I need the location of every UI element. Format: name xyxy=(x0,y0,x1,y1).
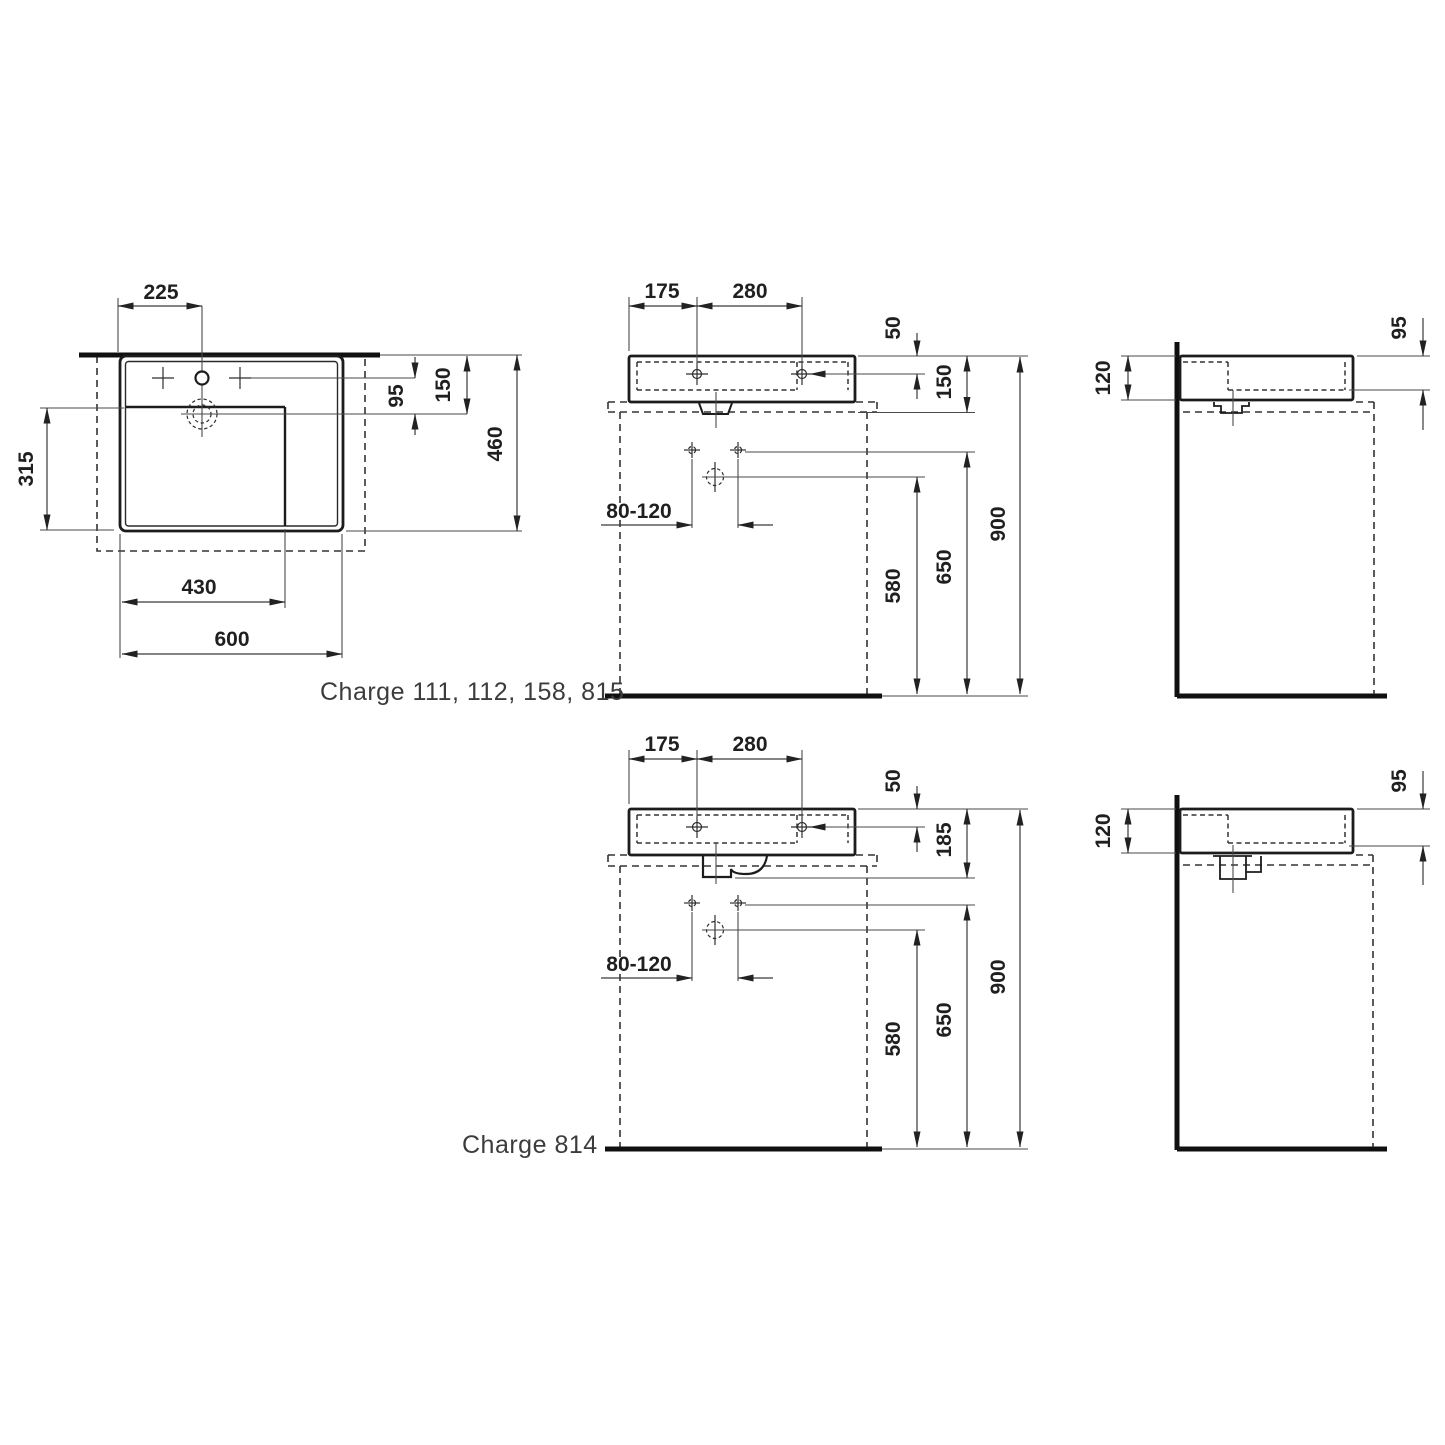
side-bot-dim-120: 120 xyxy=(1092,813,1115,848)
front-top-dim-580: 580 xyxy=(882,568,905,603)
plan-dim-315: 315 xyxy=(15,451,38,486)
front-bot-dim-50: 50 xyxy=(882,769,905,792)
front-bot-dim-175: 175 xyxy=(644,733,679,756)
front-bot-dim-185: 185 xyxy=(933,822,956,857)
side-top-dim-95: 95 xyxy=(1388,316,1411,340)
front-bot-dim-80-120: 80-120 xyxy=(606,953,671,976)
front-bot-dim-280: 280 xyxy=(732,733,767,756)
plan-dim-430: 430 xyxy=(181,576,216,599)
technical-drawing-sheet: 225 95 150 460 315 430 600 xyxy=(0,0,1445,1445)
front-bot-dim-650: 650 xyxy=(933,1002,956,1037)
side-top-dim-120: 120 xyxy=(1092,360,1115,395)
series-label-bottom: Charge 814 xyxy=(462,1131,598,1159)
washbasin-dimension-drawing: 225 95 150 460 315 430 600 xyxy=(0,0,1445,1445)
front-bot-dim-580: 580 xyxy=(882,1021,905,1056)
front-top-dim-150: 150 xyxy=(933,364,956,399)
side-basin-outline-b xyxy=(1180,809,1353,853)
plan-dim-600: 600 xyxy=(214,628,249,651)
plan-dim-225: 225 xyxy=(143,281,178,304)
plan-dim-95: 95 xyxy=(385,384,408,408)
front-basin-outline xyxy=(629,356,855,402)
front-top-dim-650: 650 xyxy=(933,549,956,584)
plan-dim-460: 460 xyxy=(484,426,507,461)
plan-dim-150: 150 xyxy=(432,367,455,402)
series-label-top: Charge 111, 112, 158, 815 xyxy=(320,678,624,706)
front-top-dim-175: 175 xyxy=(644,280,679,303)
front-top-dim-280: 280 xyxy=(732,280,767,303)
front-top-dim-50: 50 xyxy=(882,316,905,339)
side-basin-outline xyxy=(1180,356,1353,400)
front-basin-outline-b xyxy=(629,809,855,855)
front-top-dim-80-120: 80-120 xyxy=(606,500,671,523)
front-top-dim-900: 900 xyxy=(987,506,1010,541)
plan-basin-outline xyxy=(120,356,343,531)
background xyxy=(0,0,1445,1445)
plan-tap-hole xyxy=(196,372,209,385)
front-bot-dim-900: 900 xyxy=(987,959,1010,994)
side-bot-dim-95: 95 xyxy=(1388,769,1411,793)
